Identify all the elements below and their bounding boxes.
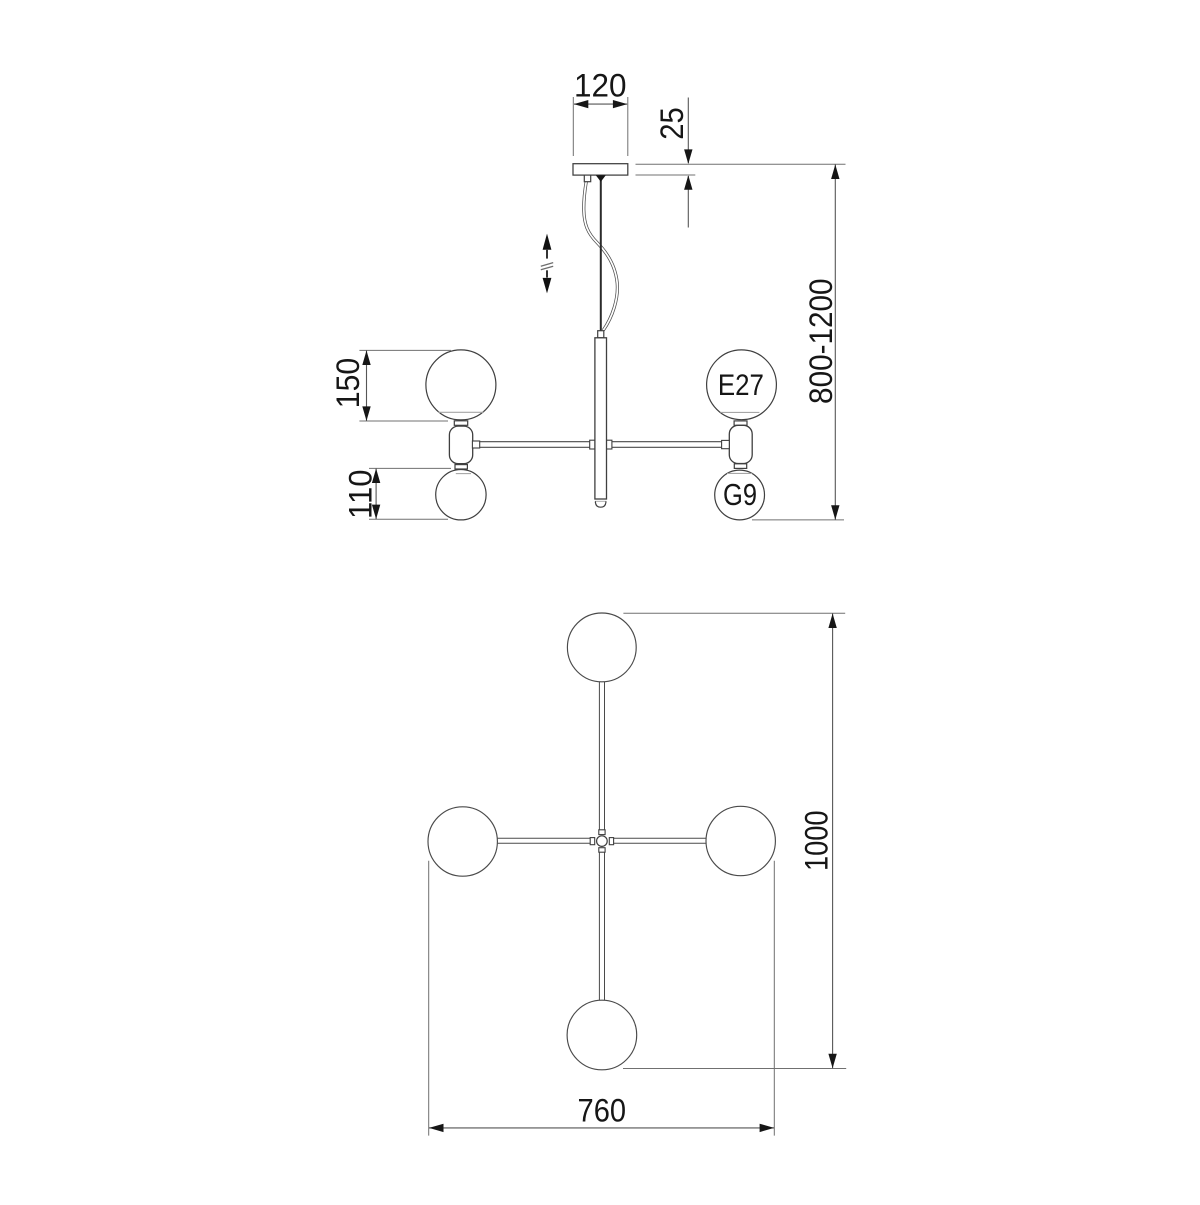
svg-text:110: 110 [342,469,378,519]
svg-text:25: 25 [654,107,690,140]
svg-text:800-1200: 800-1200 [803,278,839,404]
svg-text:150: 150 [330,358,366,409]
svg-text:760: 760 [578,1093,627,1129]
svg-text:120: 120 [574,68,627,104]
svg-text:G9: G9 [723,478,757,512]
svg-text:1000: 1000 [798,811,834,872]
svg-text:E27: E27 [718,369,764,402]
